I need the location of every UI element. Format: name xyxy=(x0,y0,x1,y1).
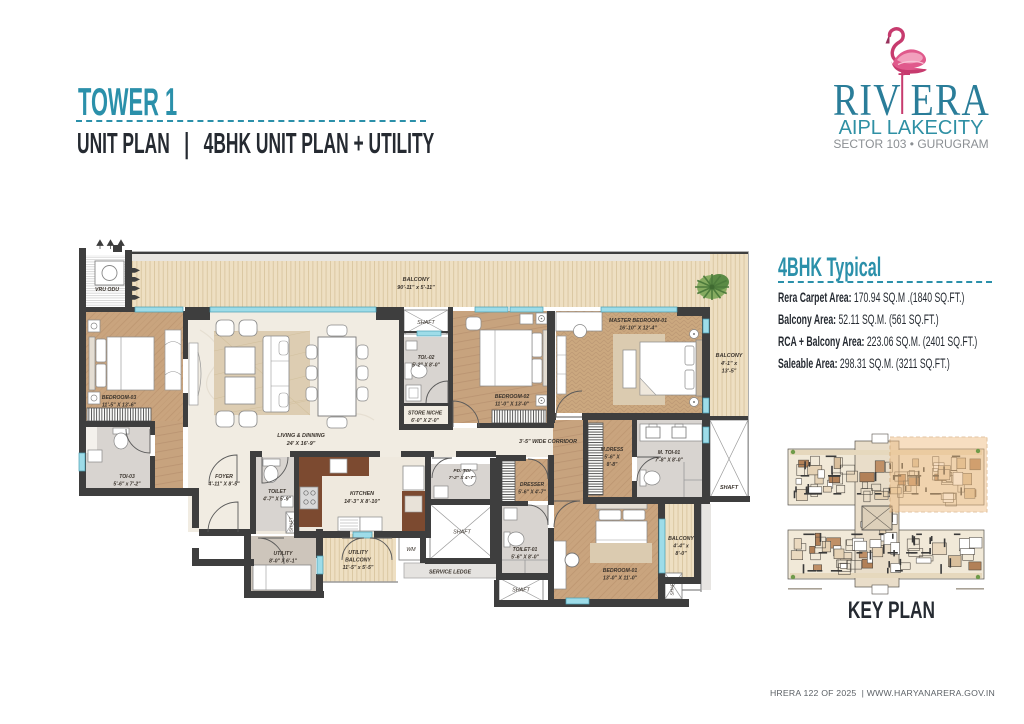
svg-text:TOILET: TOILET xyxy=(268,489,287,495)
svg-text:LIVING & DINNING: LIVING & DINNING xyxy=(277,433,325,439)
svg-text:4'-1" x: 4'-1" x xyxy=(720,361,738,367)
svg-text:13'-0" X 11'-0": 13'-0" X 11'-0" xyxy=(603,576,638,582)
svg-text:24' X 16'-9": 24' X 16'-9" xyxy=(286,441,316,447)
svg-text:UTILITY: UTILITY xyxy=(274,551,294,557)
svg-text:4'-7" X 5'-9": 4'-7" X 5'-9" xyxy=(262,496,291,502)
svg-text:BALCONY: BALCONY xyxy=(345,558,371,564)
svg-text:TOILET-01: TOILET-01 xyxy=(513,547,538,553)
svg-text:8'-0": 8'-0" xyxy=(675,551,687,557)
svg-text:SHAFT: SHAFT xyxy=(720,485,739,491)
svg-text:5'-6" X 8'-0": 5'-6" X 8'-0" xyxy=(511,554,539,560)
svg-text:11'-0" X 13'-0": 11'-0" X 13'-0" xyxy=(495,402,530,408)
svg-text:TOI-03: TOI-03 xyxy=(119,474,135,480)
svg-text:16'-10" X 12'-4": 16'-10" X 12'-4" xyxy=(619,326,657,332)
svg-text:M.DRESS: M.DRESS xyxy=(601,447,624,453)
svg-text:5'-2" X 8'-0": 5'-2" X 8'-0" xyxy=(412,362,440,368)
svg-text:DRESSER: DRESSER xyxy=(520,482,545,488)
svg-text:TOI.-02: TOI.-02 xyxy=(418,355,435,361)
svg-text:PD. TOI: PD. TOI xyxy=(453,468,471,474)
svg-text:6'-0" X 2'-0": 6'-0" X 2'-0" xyxy=(411,418,439,424)
svg-text:8'-8": 8'-8" xyxy=(607,462,618,468)
svg-text:4'-11" X 8'-5": 4'-11" X 8'-5" xyxy=(207,482,240,488)
svg-text:3'-5" WIDE CORRIDOR: 3'-5" WIDE CORRIDOR xyxy=(519,439,577,445)
svg-text:11'-5" x 5'-5": 11'-5" x 5'-5" xyxy=(343,565,374,571)
svg-text:UTILITY: UTILITY xyxy=(348,550,368,556)
svg-text:MASTER BEDROOM-01: MASTER BEDROOM-01 xyxy=(609,318,667,324)
svg-text:M. TOI-01: M. TOI-01 xyxy=(658,450,681,456)
svg-text:FOYER: FOYER xyxy=(215,474,233,480)
svg-text:SHAFT: SHAFT xyxy=(417,320,435,326)
svg-text:5'-6" X: 5'-6" X xyxy=(604,454,620,460)
svg-text:SERVICE LEDGE: SERVICE LEDGE xyxy=(429,570,472,576)
svg-text:7'-2" X 4'-7": 7'-2" X 4'-7" xyxy=(449,475,476,481)
svg-text:SHAFT: SHAFT xyxy=(453,530,471,536)
svg-text:STORE NICHE: STORE NICHE xyxy=(408,411,443,417)
svg-text:11'-5" X 13'-6": 11'-5" X 13'-6" xyxy=(102,403,137,409)
svg-text:BEDROOM-03: BEDROOM-03 xyxy=(102,395,137,401)
svg-text:5'-6" X 4'-7": 5'-6" X 4'-7" xyxy=(518,489,546,495)
svg-text:90'-11" x 5'-11": 90'-11" x 5'-11" xyxy=(397,285,435,291)
svg-text:BALCONY: BALCONY xyxy=(668,536,694,542)
svg-text:BEDROOM-02: BEDROOM-02 xyxy=(495,394,530,400)
svg-text:BEDROOM-01: BEDROOM-01 xyxy=(603,568,638,574)
svg-text:13'-5": 13'-5" xyxy=(722,369,737,375)
svg-text:14'-3" X 8'-10": 14'-3" X 8'-10" xyxy=(344,499,380,505)
svg-text:WM: WM xyxy=(406,547,416,553)
svg-text:KITCHEN: KITCHEN xyxy=(350,491,374,497)
svg-text:5'-6" x 7'-2": 5'-6" x 7'-2" xyxy=(113,481,141,487)
svg-text:VRU ODU: VRU ODU xyxy=(95,287,119,293)
svg-text:BALCONY: BALCONY xyxy=(716,353,743,359)
svg-text:SHAFT: SHAFT xyxy=(289,516,294,532)
svg-text:SHAFT: SHAFT xyxy=(512,588,530,594)
svg-text:4'-4" x: 4'-4" x xyxy=(672,544,690,550)
svg-text:7'-8" X 8'-0": 7'-8" X 8'-0" xyxy=(655,457,683,463)
svg-text:8'-0" X 6'-1": 8'-0" X 6'-1" xyxy=(269,558,297,564)
svg-text:BALCONY: BALCONY xyxy=(403,277,430,283)
